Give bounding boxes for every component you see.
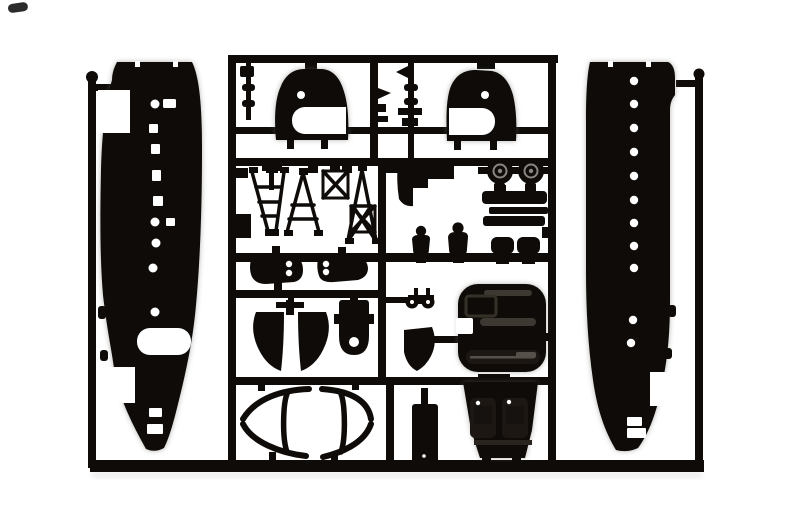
flap-part [404,327,460,371]
engine-cowling-front [456,284,556,372]
lower-notch [106,367,135,403]
winch-part [386,288,435,309]
door-panel [412,388,438,468]
cowling-dome-left [275,56,348,149]
bar-shadow [92,472,702,478]
left-fuselage-half [98,61,202,451]
cockpit-notch [98,90,130,133]
cowling-notch [456,318,473,334]
pod-halves [250,246,368,291]
sprue-photo [0,0,800,530]
truss-parts [249,165,381,244]
keel-part [253,294,329,371]
tailplane-outline [243,378,371,466]
right-runner-bar [676,69,705,469]
cockpit-floor-seats [463,374,538,468]
bottom-bar [90,460,704,472]
film-mark [7,2,28,14]
wing-opening [137,328,191,355]
side-notch [650,372,678,406]
cowling-dome-right [446,57,516,150]
sprue-scene [0,0,800,530]
ring-part [334,293,374,355]
right-fuselage-half [586,61,678,451]
